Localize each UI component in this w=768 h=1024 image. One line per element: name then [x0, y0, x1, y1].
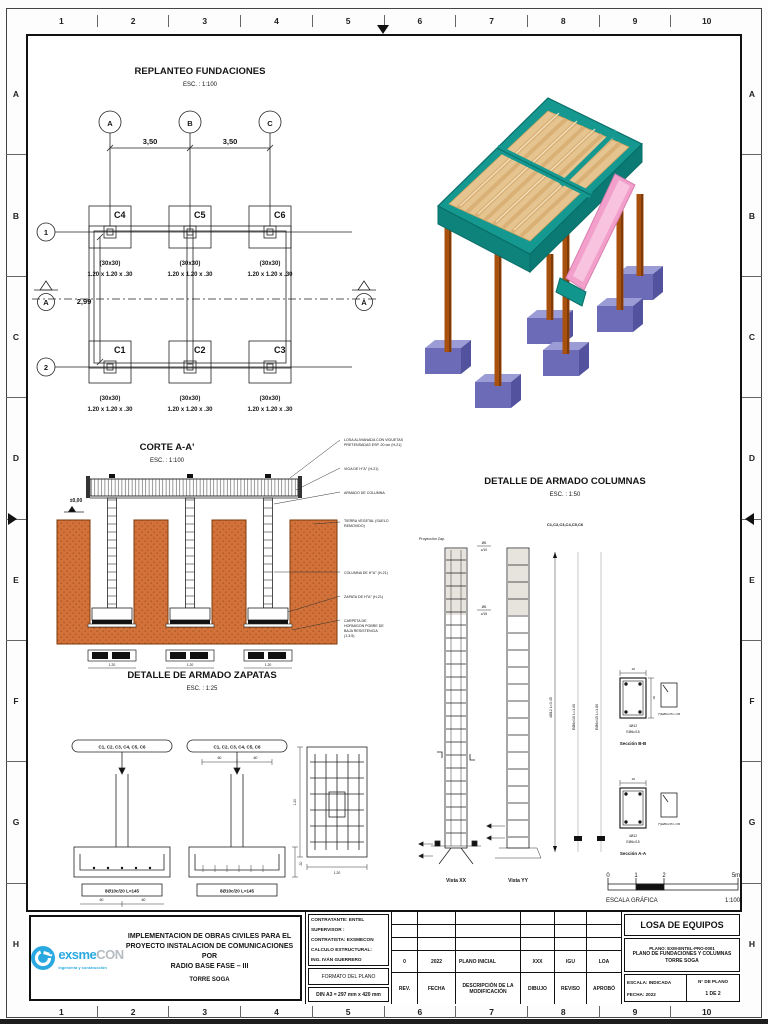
rev-empty-cell — [555, 925, 587, 938]
rev-reviewed: IGU — [555, 951, 587, 973]
callout-carpeta-2: HORMIGON POBRE DE — [344, 624, 384, 628]
footing-cubes — [425, 266, 663, 408]
fecha-header: FECHA — [418, 973, 456, 1004]
graphic-scale-ratio: 1:100 — [725, 898, 741, 904]
footing-c2-dim: 1.20 x 1.20 x .30 — [167, 407, 213, 413]
zapata-detail-1-bars — [93, 867, 151, 869]
callout-zapata: ZAPATA DE H°A° (H-21) — [344, 595, 383, 599]
footing-c5-dim: 1.20 x 1.20 x .30 — [167, 272, 213, 278]
replanteo-fundaciones-drawing: REPLANTEO FUNDACIONES ESC. : 1:100 A B C… — [30, 52, 380, 427]
vista-yy-label: Vista YY — [508, 878, 528, 884]
footing-c4-size: (30x30) — [100, 261, 121, 267]
zapata-dim-a: .60 — [99, 898, 104, 902]
rev-empty-cell — [418, 938, 456, 951]
callout-armado: ARMADO DE COLUMNA — [344, 491, 385, 495]
contratante-line: CONTRATANTE: ENTEL — [311, 917, 386, 924]
project-line-4: TORRE SOGA — [123, 975, 296, 985]
parties-info: CONTRATANTE: ENTEL SUPERVISOR : CONTRATI… — [308, 914, 389, 966]
footing-c3-dim: 1.20 x 1.20 x .30 — [247, 407, 293, 413]
zapata-dim-side: .30 — [299, 862, 303, 867]
rev-date: 2022 — [418, 951, 456, 973]
dim-ab: 3,50 — [143, 137, 158, 146]
callout-carpeta-3: BAJA RESISTENCIA — [344, 629, 378, 633]
logo-text-main: exsme — [58, 947, 96, 962]
seccion-bb — [620, 670, 654, 718]
company-logo: exsmeCON ingeniería y construcción — [31, 945, 123, 971]
project-line-3: RADIO BASE FASE – III — [123, 962, 296, 972]
plano-site: TORRE SOGA — [665, 958, 699, 965]
contratista-line: CONTRATISTA: EXSMECON — [311, 937, 386, 944]
zapata-dim-top-b: .60 — [253, 756, 258, 760]
zapata-dim-b: .60 — [141, 898, 146, 902]
footing-c1-size: (30x30) — [100, 396, 121, 402]
axis-a-label: A — [107, 119, 113, 128]
rev-empty-cell — [418, 912, 456, 925]
footing-c1-label: C1 — [114, 345, 126, 355]
frac1-top: Ø6 — [482, 541, 487, 545]
seccion-aa-dim-w: .20 — [631, 777, 636, 781]
title-block: exsmeCON ingeniería y construcción IMPLE… — [26, 910, 742, 1004]
footing-c4-dim: 1.20 x 1.20 x .30 — [87, 272, 133, 278]
numero-plano-cell: N° DE PLANO 1 DE 2 — [687, 975, 739, 1001]
sheet-title: LOSA DE EQUIPOS — [624, 914, 740, 936]
stirrup-detail-2 — [661, 793, 677, 817]
scale-tick-5m: 5m — [732, 873, 740, 879]
section-cut-markers — [34, 281, 376, 311]
nplano-value: 1 DE 2 — [705, 991, 720, 997]
title-block-project: exsmeCON ingeniería y construcción IMPLE… — [26, 912, 306, 1004]
rev-empty-cell — [555, 912, 587, 925]
aprobo-header: APROBÓ — [587, 973, 621, 1004]
frac2-bottom: c/15 — [481, 612, 488, 616]
zapata-plan-dim-h: 1.20 — [293, 799, 297, 806]
row-1-label: 1 — [44, 228, 48, 237]
frac2-top: Ø6 — [482, 605, 487, 609]
supervisor-line: SUPERVISOR : — [311, 927, 386, 934]
center-mark-left — [8, 513, 17, 525]
footing-c5-size: (30x30) — [180, 261, 201, 267]
stirrup-zone-lines — [574, 552, 605, 852]
callout-losa-1: LOSA ALIVIANADA CON VIGUETAS — [344, 438, 404, 442]
plano-description: PLANO DE FUNDACIONES Y COLUMNAS — [633, 951, 732, 958]
columnas-title: DETALLE DE ARMADO COLUMNAS — [484, 476, 646, 487]
seccion-bb-bars: 4Ø12 — [629, 724, 637, 728]
columna-vista-yy — [487, 548, 541, 858]
footing-c6-label: C6 — [274, 210, 286, 220]
footings-section — [88, 608, 292, 627]
seccion-aa-stirrup: EØ6c/15 — [626, 840, 639, 844]
seccion-bb-title: Sección B-B — [620, 741, 647, 746]
section-letter-left: A — [43, 298, 49, 307]
stirrup-fractions: Ø6 c/10 Ø6 c/15 — [477, 541, 491, 616]
reviso-header: REVISO — [555, 973, 587, 1004]
scale-tick-2: 2 — [662, 873, 666, 879]
callout-tierra-1: TIERRA VEGETAL (SUELO — [344, 519, 389, 523]
zapata-dim-top-a: .60 — [217, 756, 222, 760]
rev-empty-cell — [456, 938, 521, 951]
dim-bc: 3,50 — [223, 137, 238, 146]
callout-viga: VIGA DE H°A° (H-21) — [344, 467, 378, 471]
rev-description: PLANO INICIAL — [456, 951, 521, 973]
logo-icon — [30, 945, 56, 971]
rev-empty-cell — [456, 912, 521, 925]
project-title: IMPLEMENTACION DE OBRAS CIVILES PARA EL … — [123, 932, 300, 985]
zapata-plan-view — [297, 747, 367, 870]
footing-c2-label: C2 — [194, 345, 206, 355]
stirrup-zone-label-2: EØ6c/15 L=1.80 — [595, 704, 599, 730]
stirrup-detail-1 — [661, 683, 677, 707]
zapatas-detail-drawing: DETALLE DE ARMADO ZAPATAS ESC. : 1:25 C1… — [52, 662, 372, 912]
proyeccion-label: Proyección Zap. — [419, 537, 445, 541]
callout-tierra-2: REMOVIDO) — [344, 524, 365, 528]
footing-c3-label: C3 — [274, 345, 286, 355]
escala-text: ESCALA: INDICADA — [627, 980, 684, 985]
rev-empty-cell — [392, 925, 418, 938]
columna-vista-xx — [419, 548, 481, 864]
level-marker — [64, 506, 84, 512]
formato-value: DIN A3 = 297 mm x 420 mm — [308, 987, 389, 1002]
fecha-text: FECHA: 2022 — [627, 992, 684, 997]
nplano-label: N° DE PLANO — [698, 979, 728, 984]
seccion-aa-bars: 4Ø12 — [629, 834, 637, 838]
callout-carpeta-4: (1:3:5) — [344, 634, 354, 638]
zapata-bar-label-2: 8Ø10c/20 L=145 — [220, 889, 254, 894]
ingeniero-line: ING. IVÁN GUERRERO — [311, 957, 386, 964]
graphic-scale-bar — [608, 878, 738, 890]
rev-number: 0 — [392, 951, 418, 973]
logo-text-suffix: CON — [96, 947, 123, 962]
formato-label: FORMATO DEL PLANO — [308, 968, 389, 985]
scale-tick-1: 1 — [634, 873, 638, 879]
rev-empty-cell — [587, 912, 621, 925]
graphic-scale: 0 1 2 5m ESCALA GRÁFICA 1:100 — [598, 870, 748, 912]
zapata-tag-2: C1, C2, C3, C4, C5, C6 — [213, 745, 261, 750]
zapata-plan-dim-w: 1.20 — [334, 871, 341, 875]
isometric-3d-render — [408, 82, 743, 422]
escala-fecha-cell: ESCALA: INDICADA FECHA: 2022 — [625, 975, 687, 1001]
project-line-2: PROYECTO INSTALACION DE COMUNICACIONES P… — [123, 942, 296, 962]
slab-section — [86, 474, 302, 498]
column-height-label: 4Ø12 L=3.45 — [549, 697, 553, 718]
rev-empty-cell — [392, 912, 418, 925]
zapatas-scale: ESC. : 1:25 — [187, 686, 218, 692]
corte-title: CORTE A-A' — [140, 442, 195, 453]
footing-c1-dim: 1.20 x 1.20 x .30 — [87, 407, 133, 413]
rev-approved: LOA — [587, 951, 621, 973]
footing-c6-size: (30x30) — [260, 261, 281, 267]
revision-table: 0 2022 PLANO INICIAL XXX IGU LOA REV. FE… — [392, 912, 622, 1004]
rev-empty-cell — [521, 925, 555, 938]
callout-losa-2: PRETENSADAS ESP. 20 cm (H-21) — [344, 443, 401, 447]
columnas-detail-drawing: DETALLE DE ARMADO COLUMNAS ESC. : 1:50 C… — [415, 468, 740, 898]
axis-c-label: C — [267, 119, 273, 128]
zapatas-title: DETALLE DE ARMADO ZAPATAS — [127, 670, 276, 681]
title-block-parties: CONTRATANTE: ENTEL SUPERVISOR : CONTRATI… — [306, 912, 392, 1004]
scan-edge — [0, 1019, 768, 1024]
graphic-scale-label: ESCALA GRÁFICA — [606, 897, 658, 904]
replanteo-title: REPLANTEO FUNDACIONES — [135, 66, 266, 77]
footing-c5-label: C5 — [194, 210, 206, 220]
calculo-line: CALCULO ESTRUCTURAL: — [311, 947, 386, 954]
section-letter-right: A — [361, 298, 367, 307]
dibujo-header: DIBUJO — [521, 973, 555, 1004]
zapata-detail-2 — [187, 740, 298, 896]
title-block-sheet-info: LOSA DE EQUIPOS PLANO: EXM-ENTEL-PRO-000… — [622, 912, 742, 1004]
footing-c2-size: (30x30) — [180, 396, 201, 402]
level-label: ±0,00 — [70, 498, 83, 504]
axis-grid — [37, 111, 352, 376]
vista-xx-label: Vista XX — [446, 878, 467, 884]
zapata-bar-label-1: 8Ø10c/20 L=145 — [105, 889, 139, 894]
columns-section — [108, 498, 273, 608]
column-height-dimension — [553, 552, 557, 852]
seccion-bb-stirrup: EØ6c/15 — [626, 730, 639, 734]
rev-empty-cell — [418, 925, 456, 938]
row-2-label: 2 — [44, 363, 48, 372]
stirrup-note-2: (*)EØ6c/15 L=45 — [658, 822, 681, 826]
stirrup-zone-label-1: EØ6c/10 L=1.00 — [572, 704, 576, 730]
descripcion-header: DESCRIPCIÓN DE LA MODIFICACIÓN — [456, 973, 521, 1004]
rev-drawn: XXX — [521, 951, 555, 973]
seccion-bb-dim-h: .30 — [652, 696, 656, 701]
logo-tagline: ingeniería y construcción — [58, 965, 123, 970]
stirrup-note-1: (*)EØ6c/15 L=45 — [658, 712, 681, 716]
rev-empty-cell — [587, 938, 621, 951]
rev-header: REV. — [392, 973, 418, 1004]
axis-b-label: B — [187, 119, 193, 128]
callout-columna: COLUMNA DE H°A° (H-21) — [344, 571, 388, 575]
rev-empty-cell — [392, 938, 418, 951]
border-columns-bottom: 12345678910 — [26, 1005, 742, 1018]
rev-empty-cell — [555, 938, 587, 951]
footing-c3-size: (30x30) — [260, 396, 281, 402]
rev-empty-cell — [521, 938, 555, 951]
rev-empty-cell — [587, 925, 621, 938]
zapata-tag-1: C1, C2, C3, C4, C5, C6 — [98, 745, 146, 750]
seccion-bb-dim-w: .20 — [631, 667, 636, 671]
corte-aa-drawing: CORTE A-A' ESC. : 1:100 1.20 1.20 1.20 ±… — [42, 432, 392, 672]
center-mark-right — [745, 513, 754, 525]
callout-carpeta-1: CARPETA DE — [344, 619, 367, 623]
seccion-aa-title: Sección A-A — [620, 851, 647, 856]
seccion-aa — [620, 780, 646, 828]
project-line-1: IMPLEMENTACION DE OBRAS CIVILES PARA EL — [123, 932, 296, 942]
center-mark-top — [377, 25, 389, 34]
plano-info: PLANO: EXM-ENTEL-PRO-0001 PLANO DE FUNDA… — [624, 938, 740, 972]
frac1-bottom: c/10 — [481, 548, 488, 552]
corte-scale: ESC. : 1:100 — [150, 458, 185, 464]
replanteo-scale: ESC. : 1:100 — [183, 82, 218, 88]
zapata-detail-1 — [72, 740, 172, 907]
footing-c4-label: C4 — [114, 210, 126, 220]
scale-tick-0: 0 — [606, 873, 610, 879]
rev-empty-cell — [456, 925, 521, 938]
rev-empty-cell — [521, 912, 555, 925]
columnas-scale: ESC. : 1:50 — [550, 492, 581, 498]
footing-c6-dim: 1.20 x 1.20 x .30 — [247, 272, 293, 278]
columnas-tag: C1,C2,C3,C4,C5,C6 — [547, 522, 584, 527]
